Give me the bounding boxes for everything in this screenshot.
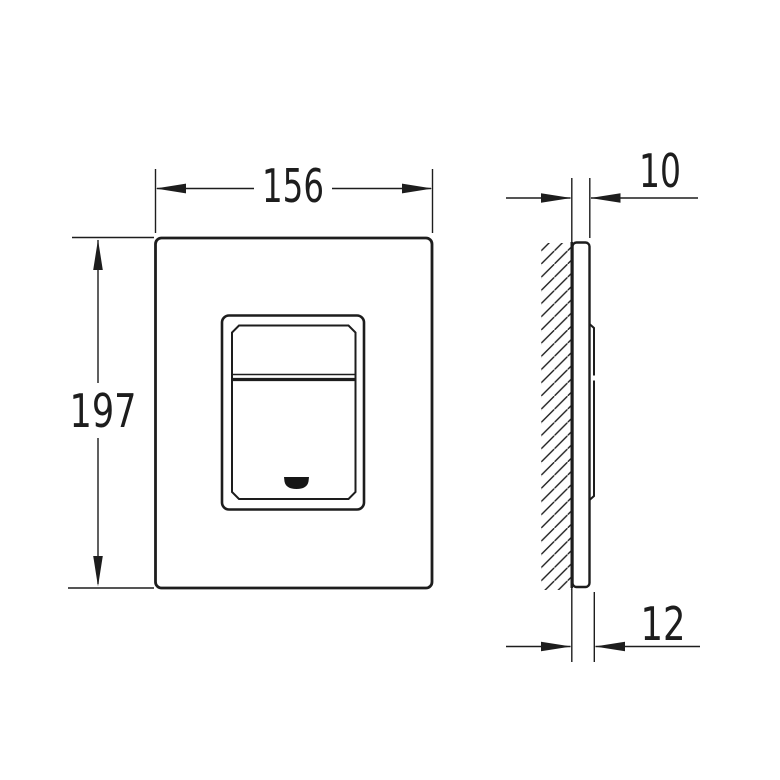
wall-hatching: [541, 243, 572, 590]
plate-profile: [573, 243, 590, 588]
dimension-front-width: 156: [156, 159, 433, 233]
plate-outline: [156, 238, 433, 588]
arrow-left-icon: [595, 642, 625, 652]
technical-drawing-canvas: 156 197: [0, 0, 780, 780]
arrow-down-icon: [93, 556, 103, 587]
dimension-value-bottom-thickness: 12: [641, 597, 686, 651]
arrow-up-icon: [93, 240, 103, 271]
arrow-right-icon: [541, 193, 571, 203]
dimension-value-top-thickness: 10: [639, 144, 681, 198]
dimension-value-height: 197: [70, 384, 137, 438]
flush-plate-drawing: 156 197: [0, 0, 780, 780]
arrow-right-icon: [541, 642, 571, 652]
dimension-side-top-thickness: 10: [506, 144, 698, 238]
dimension-side-bottom-thickness: 12: [506, 592, 700, 662]
dimension-front-height: 197: [68, 238, 154, 589]
side-view: [541, 178, 594, 662]
dimension-value-width: 156: [262, 159, 324, 213]
arrow-left-icon: [156, 184, 187, 194]
front-view: [156, 238, 433, 588]
arrow-left-icon: [590, 193, 620, 203]
arrow-right-icon: [402, 184, 433, 194]
